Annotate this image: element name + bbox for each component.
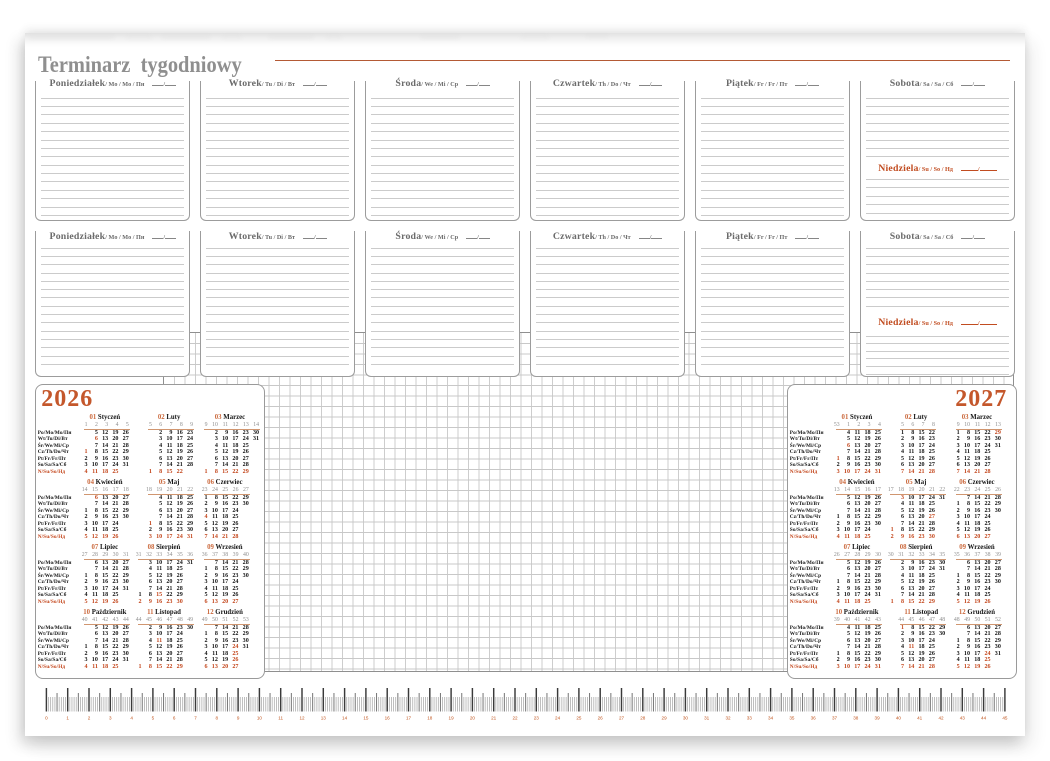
- svg-text:6: 6: [173, 716, 176, 721]
- svg-text:44: 44: [981, 716, 987, 721]
- svg-text:16: 16: [385, 716, 391, 721]
- svg-text:45: 45: [1002, 716, 1008, 721]
- svg-text:11: 11: [278, 716, 283, 721]
- svg-text:38: 38: [853, 716, 859, 721]
- svg-text:26: 26: [598, 716, 604, 721]
- svg-text:42: 42: [938, 716, 944, 721]
- svg-text:18: 18: [427, 716, 433, 721]
- svg-text:30: 30: [683, 716, 689, 721]
- svg-text:10: 10: [257, 716, 263, 721]
- svg-text:0: 0: [45, 716, 48, 721]
- svg-text:23: 23: [534, 716, 540, 721]
- svg-text:19: 19: [449, 716, 455, 721]
- svg-text:21: 21: [491, 716, 497, 721]
- svg-text:14: 14: [342, 716, 348, 721]
- svg-text:34: 34: [768, 716, 774, 721]
- svg-text:29: 29: [662, 716, 668, 721]
- svg-text:31: 31: [704, 716, 710, 721]
- svg-text:5: 5: [152, 716, 155, 721]
- svg-text:13: 13: [321, 716, 327, 721]
- svg-text:37: 37: [832, 716, 838, 721]
- svg-text:2: 2: [88, 716, 91, 721]
- svg-text:12: 12: [299, 716, 305, 721]
- svg-text:22: 22: [512, 716, 518, 721]
- svg-text:17: 17: [406, 716, 412, 721]
- svg-text:36: 36: [811, 716, 817, 721]
- svg-text:7: 7: [194, 716, 197, 721]
- svg-text:43: 43: [960, 716, 966, 721]
- svg-text:9: 9: [237, 716, 240, 721]
- svg-text:20: 20: [470, 716, 476, 721]
- svg-text:4: 4: [130, 716, 133, 721]
- svg-text:25: 25: [576, 716, 582, 721]
- svg-text:3: 3: [109, 716, 112, 721]
- svg-text:32: 32: [725, 716, 731, 721]
- svg-text:1: 1: [66, 716, 69, 721]
- svg-text:8: 8: [216, 716, 219, 721]
- svg-text:15: 15: [363, 716, 369, 721]
- svg-text:41: 41: [917, 716, 923, 721]
- svg-text:39: 39: [875, 716, 881, 721]
- svg-text:27: 27: [619, 716, 625, 721]
- svg-text:35: 35: [789, 716, 795, 721]
- svg-text:28: 28: [640, 716, 646, 721]
- svg-text:40: 40: [896, 716, 902, 721]
- svg-text:24: 24: [555, 716, 561, 721]
- svg-text:33: 33: [747, 716, 753, 721]
